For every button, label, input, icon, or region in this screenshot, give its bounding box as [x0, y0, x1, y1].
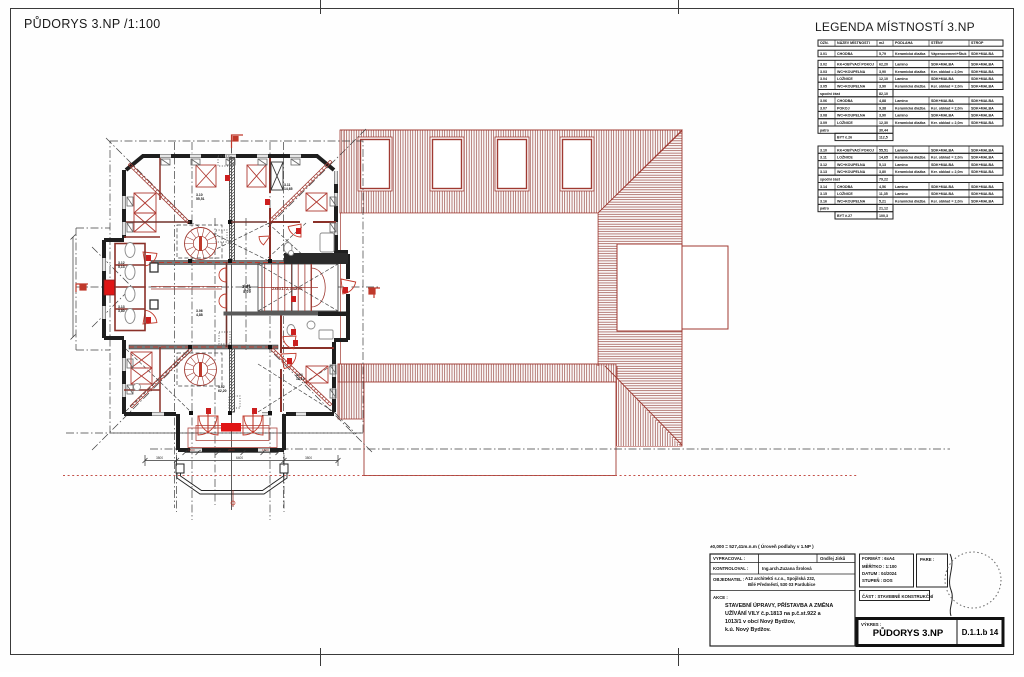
svg-text:OBJEDNATEL :: OBJEDNATEL : [713, 577, 745, 582]
svg-text:Lamino: Lamino [895, 185, 909, 189]
svg-text:14,65: 14,65 [879, 156, 888, 160]
svg-text:Keramická dlažba: Keramická dlažba [895, 156, 926, 160]
svg-text:3.07: 3.07 [820, 106, 827, 110]
svg-text:OZN.: OZN. [820, 41, 829, 45]
svg-text:3.03: 3.03 [820, 70, 827, 74]
svg-text:30,44: 30,44 [879, 128, 888, 132]
svg-text:SDK+MALBA: SDK+MALBA [971, 121, 994, 125]
svg-text:4,56: 4,56 [879, 185, 886, 189]
svg-text:KONTROLOVAL :: KONTROLOVAL : [713, 566, 749, 571]
svg-text:SDK+MALBA: SDK+MALBA [931, 185, 954, 189]
svg-text:3.01: 3.01 [820, 52, 827, 56]
svg-text:3,90: 3,90 [879, 114, 886, 118]
svg-text:WC+KOUPELNA: WC+KOUPELNA [837, 199, 866, 203]
svg-text:AKCE :: AKCE : [713, 595, 728, 600]
svg-text:Ker. obklad = 2,0m: Ker. obklad = 2,0m [931, 85, 963, 89]
svg-text:SDK+MALBA: SDK+MALBA [971, 163, 994, 167]
svg-text:SDK+MALBA: SDK+MALBA [931, 192, 954, 196]
svg-text:WC+KOUPELNA: WC+KOUPELNA [837, 85, 866, 89]
svg-text:3,90: 3,90 [879, 70, 886, 74]
svg-text:3.14: 3.14 [820, 185, 827, 189]
svg-text:5,79: 5,79 [879, 52, 886, 56]
svg-text:Bílé Předměstí, 530 03 Pardubi: Bílé Předměstí, 530 03 Pardubice [748, 582, 816, 587]
svg-text:3,80: 3,80 [879, 170, 886, 174]
svg-text:KK+OBÝVACÍ POKOJ: KK+OBÝVACÍ POKOJ [837, 62, 874, 67]
svg-text:5,13: 5,13 [118, 265, 125, 269]
svg-text:VYPRACOVAL :: VYPRACOVAL : [713, 556, 746, 561]
svg-text:STĚNY: STĚNY [931, 40, 944, 45]
svg-text:STUPEŇ : DOS: STUPEŇ : DOS [862, 578, 893, 583]
svg-text:WC+KOUPELNA: WC+KOUPELNA [837, 163, 866, 167]
svg-text:1800: 1800 [188, 448, 195, 452]
svg-text:spodní část: spodní část [820, 178, 841, 182]
svg-text:1800: 1800 [262, 448, 269, 452]
svg-text:SDK+MALBA: SDK+MALBA [971, 185, 994, 189]
svg-text:STROP: STROP [971, 41, 984, 45]
svg-text:SDK+MALBA: SDK+MALBA [931, 63, 954, 67]
svg-text:Ker. obklad = 2,0m: Ker. obklad = 2,0m [931, 199, 963, 203]
svg-text:VÝKRES :: VÝKRES : [861, 622, 882, 627]
svg-text:CHODBA: CHODBA [837, 185, 853, 189]
svg-text:Lamino: Lamino [895, 99, 909, 103]
svg-text:Keramická dlažba: Keramická dlažba [895, 106, 926, 110]
svg-text:Ker. obklad = 2,0m: Ker. obklad = 2,0m [931, 121, 963, 125]
svg-text:SDK+MALBA: SDK+MALBA [931, 163, 954, 167]
svg-text:3.02: 3.02 [820, 63, 827, 67]
svg-text:WC+KOUPELNA: WC+KOUPELNA [837, 114, 866, 118]
svg-text:LOŽNICE: LOŽNICE [837, 76, 853, 81]
svg-text:SDK+MALBA: SDK+MALBA [971, 106, 994, 110]
svg-text:12,30: 12,30 [879, 121, 888, 125]
svg-text:3.15: 3.15 [820, 192, 827, 196]
svg-text:LOŽNICE: LOŽNICE [837, 155, 853, 160]
svg-text:SDK+MALBA: SDK+MALBA [971, 85, 994, 89]
svg-text:SDK+MALBA: SDK+MALBA [971, 99, 994, 103]
svg-text:9,38: 9,38 [879, 106, 886, 110]
svg-text:3.09: 3.09 [820, 121, 827, 125]
svg-text:Lamino: Lamino [895, 148, 909, 152]
svg-text:patro: patro [820, 128, 830, 132]
svg-text:11,35: 11,35 [879, 192, 888, 196]
svg-text:SDK+MALBA: SDK+MALBA [971, 156, 994, 160]
svg-text:62,20: 62,20 [879, 63, 888, 67]
svg-text:CHODBA: CHODBA [837, 99, 853, 103]
svg-text:CHODBA: CHODBA [837, 52, 853, 56]
svg-text:3.16: 3.16 [820, 199, 827, 203]
svg-text:SDK+MALBA: SDK+MALBA [971, 52, 994, 56]
svg-text:5,79: 5,79 [244, 288, 251, 292]
svg-text:KK+OBÝVACÍ POKOJ: KK+OBÝVACÍ POKOJ [837, 147, 874, 152]
svg-text:WC+KOUPELNA: WC+KOUPELNA [837, 170, 866, 174]
svg-text:12,10: 12,10 [879, 77, 888, 81]
svg-text:FORMÁT : 6xA4: FORMÁT : 6xA4 [862, 556, 895, 561]
svg-text:NÁZEV MÍSTNOSTI: NÁZEV MÍSTNOSTI [837, 40, 870, 45]
svg-text:SDK+MALBA: SDK+MALBA [971, 170, 994, 174]
svg-text:112,5: 112,5 [879, 136, 888, 140]
svg-text:55,51: 55,51 [196, 197, 205, 201]
svg-text:BYT č.26: BYT č.26 [837, 136, 852, 140]
svg-text:82,10: 82,10 [879, 92, 888, 96]
svg-text:3800: 3800 [156, 456, 163, 460]
svg-text:SDK+MALBA: SDK+MALBA [931, 148, 954, 152]
svg-text:6400: 6400 [236, 456, 243, 460]
svg-text:Keramická dlažba: Keramická dlažba [895, 121, 926, 125]
svg-text:Ker. obklad = 2,0m: Ker. obklad = 2,0m [931, 170, 963, 174]
svg-text:3,80: 3,80 [118, 309, 125, 313]
svg-text:3800: 3800 [305, 456, 312, 460]
svg-text:Lamino: Lamino [895, 163, 909, 167]
svg-text:SDK+MALBA: SDK+MALBA [931, 99, 954, 103]
svg-text:3.08: 3.08 [820, 114, 827, 118]
svg-text:A12 architekti s.r.o., Spojils: A12 architekti s.r.o., Spojilská 232, [745, 576, 815, 581]
svg-text:Lamino: Lamino [895, 114, 909, 118]
svg-text:PARE :: PARE : [920, 557, 935, 562]
svg-text:100,3: 100,3 [879, 214, 888, 218]
svg-text:±0,000 = 527,41m.n.m ( Úroveň: ±0,000 = 527,41m.n.m ( Úroveň podlahy v … [710, 543, 814, 549]
svg-text:Keramická dlažba: Keramická dlažba [895, 85, 926, 89]
svg-text:21,12: 21,12 [879, 207, 888, 211]
svg-text:Lamino: Lamino [895, 192, 909, 196]
svg-text:SDK+MALBA: SDK+MALBA [971, 199, 994, 203]
svg-text:spodní část: spodní část [820, 92, 841, 96]
svg-text:2x6x172,76/290: 2x6x172,76/290 [272, 286, 303, 291]
svg-text:Ondřej Jirků: Ondřej Jirků [820, 556, 846, 561]
svg-text:m2: m2 [879, 41, 884, 45]
svg-text:Keramická dlažba: Keramická dlažba [895, 70, 926, 74]
svg-text:SDK+MALBA: SDK+MALBA [971, 77, 994, 81]
svg-text:Keramická dlažba: Keramická dlažba [895, 199, 926, 203]
svg-text:Lamino: Lamino [895, 77, 909, 81]
svg-text:2600: 2600 [228, 448, 235, 452]
svg-text:3.04: 3.04 [820, 77, 827, 81]
svg-text:WC+KOUPELNA: WC+KOUPELNA [837, 70, 866, 74]
svg-text:Keramická dlažba: Keramická dlažba [895, 170, 926, 174]
svg-text:3.11: 3.11 [820, 156, 827, 160]
svg-text:5,21: 5,21 [879, 199, 886, 203]
svg-text:62,20: 62,20 [218, 389, 227, 393]
svg-text:3.13: 3.13 [820, 170, 827, 174]
svg-text:UŽÍVÁNÍ VILY č.p.1813 na p.č.s: UŽÍVÁNÍ VILY č.p.1813 na p.č.st.922 a [725, 609, 822, 617]
svg-text:ČÁST : STAVEBNĚ KONSTRUKČNÍ: ČÁST : STAVEBNĚ KONSTRUKČNÍ [862, 594, 934, 599]
svg-text:SDK+MALBA: SDK+MALBA [971, 148, 994, 152]
svg-text:DATUM : 04/2024: DATUM : 04/2024 [862, 571, 897, 576]
svg-text:PŮDORYS 3.NP /1:100: PŮDORYS 3.NP /1:100 [24, 16, 161, 31]
svg-text:LEGENDA MÍSTNOSTÍ 3.NP: LEGENDA MÍSTNOSTÍ 3.NP [815, 19, 975, 34]
svg-text:SDK+MALBA: SDK+MALBA [971, 70, 994, 74]
svg-text:patro: patro [820, 207, 830, 211]
svg-text:Lamino: Lamino [895, 63, 909, 67]
svg-text:4,88: 4,88 [196, 313, 203, 317]
svg-text:k.ú. Nový Bydžov.: k.ú. Nový Bydžov. [725, 627, 771, 633]
svg-text:D.1.1.b 14: D.1.1.b 14 [962, 628, 999, 637]
svg-text:LOŽNICE: LOŽNICE [837, 120, 853, 125]
svg-text:55,51: 55,51 [879, 148, 888, 152]
svg-text:1013/1 v obcí Nový Bydžov,: 1013/1 v obcí Nový Bydžov, [725, 619, 796, 625]
svg-text:Ker. obklad = 2,0m: Ker. obklad = 2,0m [931, 156, 963, 160]
svg-text:Ker. obklad = 2,0m: Ker. obklad = 2,0m [931, 70, 963, 74]
svg-text:14,65: 14,65 [284, 187, 293, 191]
svg-text:79,22: 79,22 [879, 178, 888, 182]
svg-text:3.05: 3.05 [820, 85, 827, 89]
svg-text:Keramická dlažba: Keramická dlažba [895, 52, 926, 56]
svg-text:Ker. obklad = 2,0m: Ker. obklad = 2,0m [931, 106, 963, 110]
svg-text:SDK+MALBA: SDK+MALBA [971, 114, 994, 118]
svg-text:12,10: 12,10 [296, 377, 305, 381]
svg-text:3.06: 3.06 [820, 99, 827, 103]
svg-text:LOŽNICE: LOŽNICE [837, 191, 853, 196]
svg-text:STAVEBNÍ ÚPRAVY, PŘÍSTAVBA A Z: STAVEBNÍ ÚPRAVY, PŘÍSTAVBA A ZMĚNA [725, 601, 833, 609]
svg-text:MĚŘÍTKO : 1:100: MĚŘÍTKO : 1:100 [862, 564, 897, 569]
svg-text:SDK+MALBA: SDK+MALBA [931, 114, 954, 118]
svg-text:3.12: 3.12 [820, 163, 827, 167]
svg-text:5,13: 5,13 [879, 163, 886, 167]
svg-text:SDK+MALBA: SDK+MALBA [931, 77, 954, 81]
svg-text:PODLAHA: PODLAHA [895, 41, 913, 45]
svg-text:PŮDORYS 3.NP: PŮDORYS 3.NP [873, 627, 944, 639]
svg-text:SDK+MALBA: SDK+MALBA [971, 192, 994, 196]
svg-text:Vápenocement+Štuk: Vápenocement+Štuk [931, 51, 966, 56]
svg-text:Ing.arch.Zuzana Šrolová: Ing.arch.Zuzana Šrolová [762, 566, 812, 571]
svg-text:BYT č.27: BYT č.27 [837, 214, 852, 218]
svg-text:3,90: 3,90 [879, 85, 886, 89]
svg-text:POKOJ: POKOJ [837, 106, 850, 110]
svg-text:4,88: 4,88 [879, 99, 886, 103]
svg-text:SDK+MALBA: SDK+MALBA [971, 63, 994, 67]
svg-text:3.10: 3.10 [820, 148, 827, 152]
